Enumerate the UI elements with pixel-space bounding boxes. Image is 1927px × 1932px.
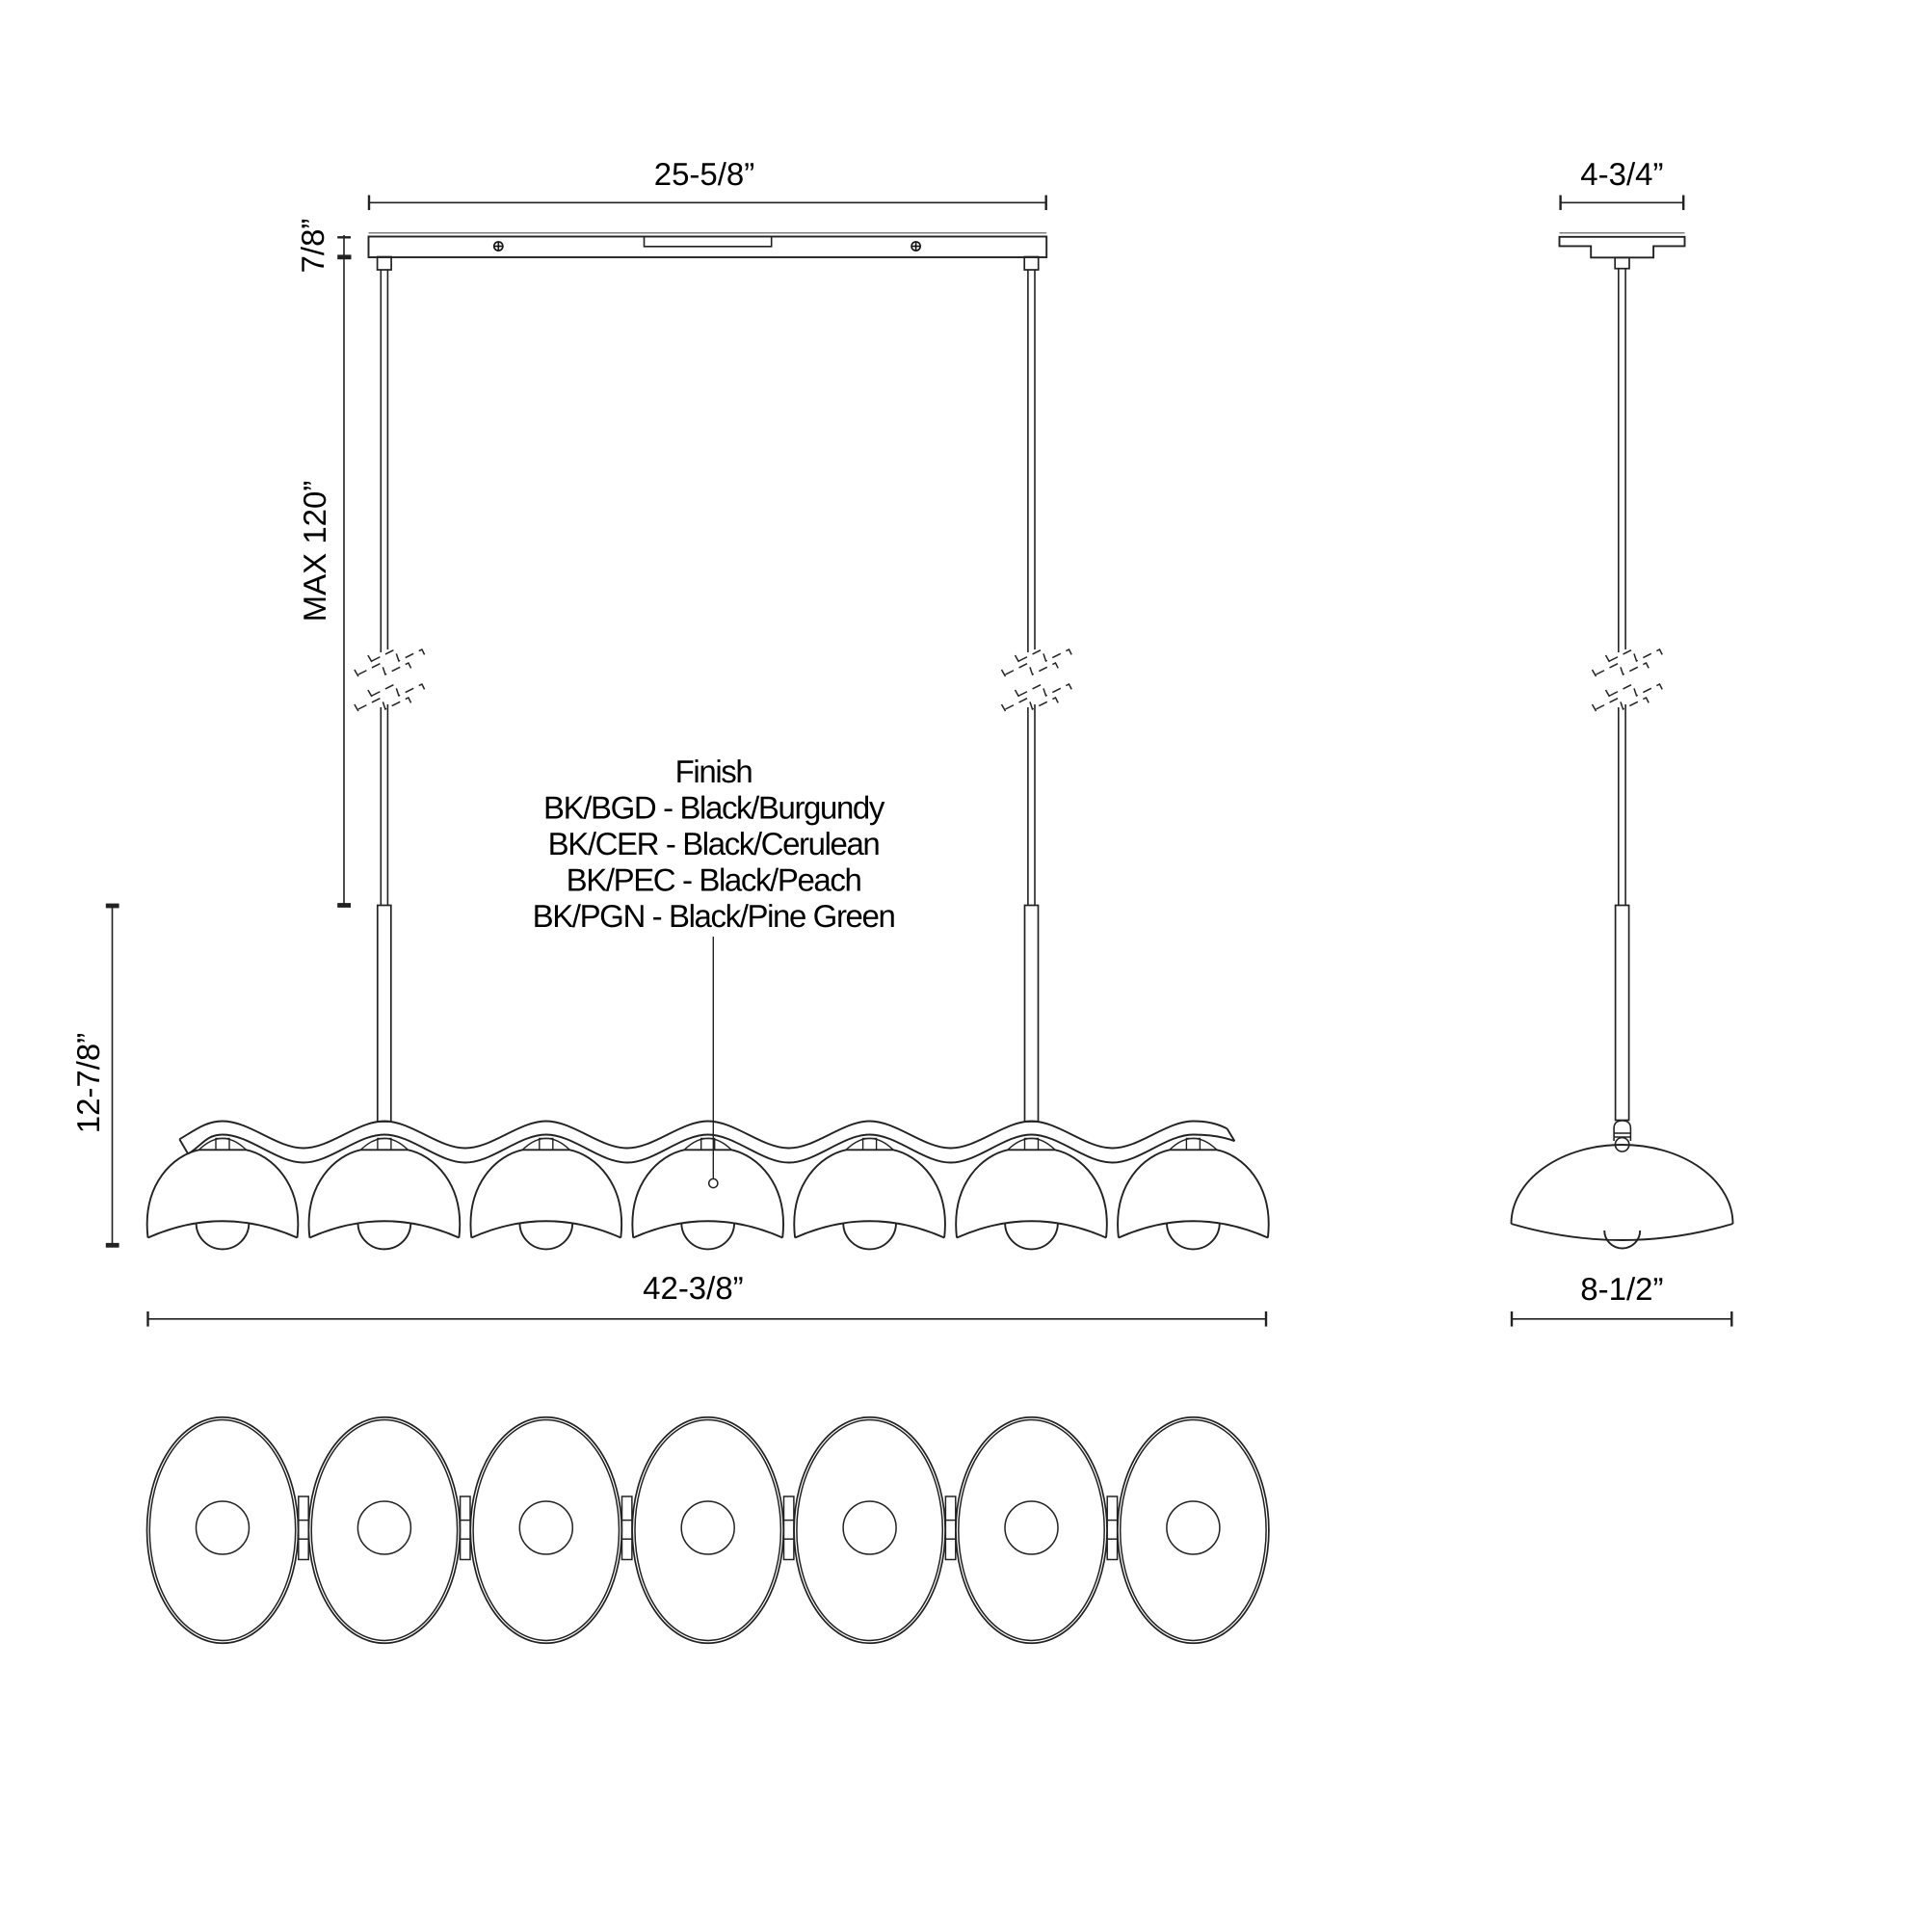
svg-text:8-1/2”: 8-1/2”	[1580, 1271, 1663, 1307]
svg-text:Finish: Finish	[675, 754, 752, 789]
svg-text:MAX 120”: MAX 120”	[297, 481, 332, 622]
svg-text:BK/PEC - Black/Peach: BK/PEC - Black/Peach	[567, 862, 861, 898]
svg-text:12-7/8”: 12-7/8”	[70, 1033, 106, 1134]
svg-text:42-3/8”: 42-3/8”	[643, 1270, 744, 1306]
svg-text:7/8”: 7/8”	[295, 219, 330, 274]
svg-text:4-3/4”: 4-3/4”	[1580, 156, 1663, 192]
svg-text:BK/CER - Black/Cerulean: BK/CER - Black/Cerulean	[548, 826, 880, 861]
svg-text:BK/PGN - Black/Pine Green: BK/PGN - Black/Pine Green	[533, 898, 895, 934]
svg-text:BK/BGD - Black/Burgundy: BK/BGD - Black/Burgundy	[543, 790, 885, 826]
svg-text:25-5/8”: 25-5/8”	[654, 156, 755, 192]
